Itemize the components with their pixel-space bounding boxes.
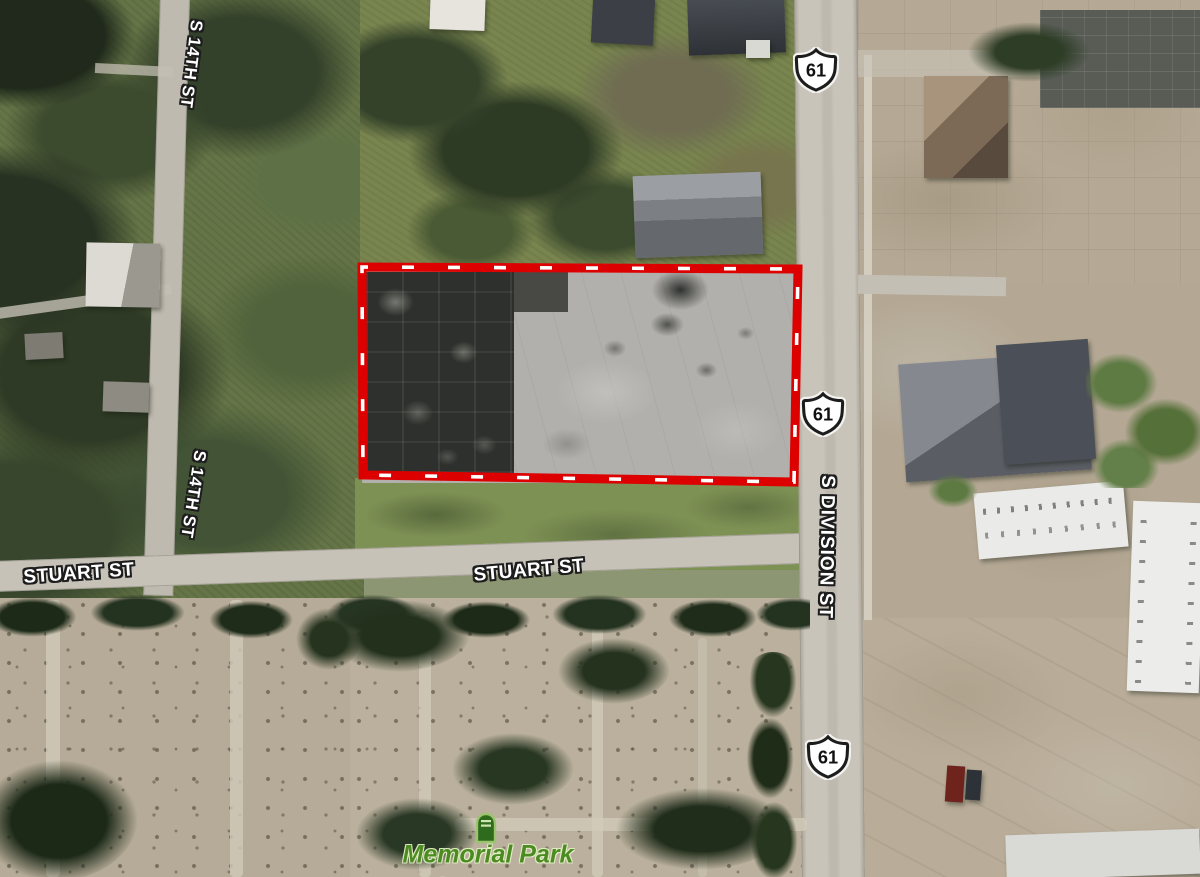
industrial-building-roof <box>1127 501 1200 693</box>
charred-building-footprint <box>512 272 568 312</box>
cemetery-poi-label-line2: Cemetery <box>431 874 545 877</box>
cemetery-path <box>419 614 431 877</box>
charred-building-footprint <box>366 272 514 473</box>
fenced-lot <box>1040 10 1200 108</box>
building-roof <box>687 0 786 56</box>
shed-roof <box>102 381 149 413</box>
building-roof <box>1005 829 1200 877</box>
cemetery-path <box>455 818 807 831</box>
tombstone-icon <box>473 812 499 844</box>
cemetery-poi-label-line1: Memorial Park <box>403 841 574 870</box>
building-roof <box>429 0 485 31</box>
house-roof <box>633 172 764 258</box>
aerial-map-canvas[interactable]: S 14TH ST S 14TH ST STUART ST STUART ST … <box>0 0 1200 877</box>
cemetery-path <box>592 614 603 877</box>
house-roof-gray <box>996 339 1096 465</box>
route-number: 61 <box>806 61 826 81</box>
route-number: 61 <box>818 748 838 768</box>
cemetery-path <box>230 600 243 877</box>
cemetery-path <box>698 638 707 877</box>
us-route-shield-icon: 61 <box>800 391 846 437</box>
building-roof <box>591 0 655 46</box>
cemetery-grounds-middle <box>350 598 802 877</box>
shed-roof <box>24 332 63 360</box>
sidewalk-east-of-division <box>864 55 872 620</box>
route-number: 61 <box>813 405 833 425</box>
house-roof <box>85 242 160 307</box>
driveway-east <box>858 275 1006 297</box>
cemetery-path <box>46 600 60 877</box>
parked-truck <box>965 770 982 801</box>
us-route-shield-icon: 61 <box>805 734 851 780</box>
parked-truck <box>945 765 965 802</box>
us-route-shield-icon: 61 <box>793 47 839 93</box>
building-roof <box>746 40 770 58</box>
industrial-building-roof <box>973 481 1128 560</box>
street-label-s-division-st: S DIVISION ST <box>814 475 839 619</box>
house-roof-brown <box>924 76 1008 178</box>
